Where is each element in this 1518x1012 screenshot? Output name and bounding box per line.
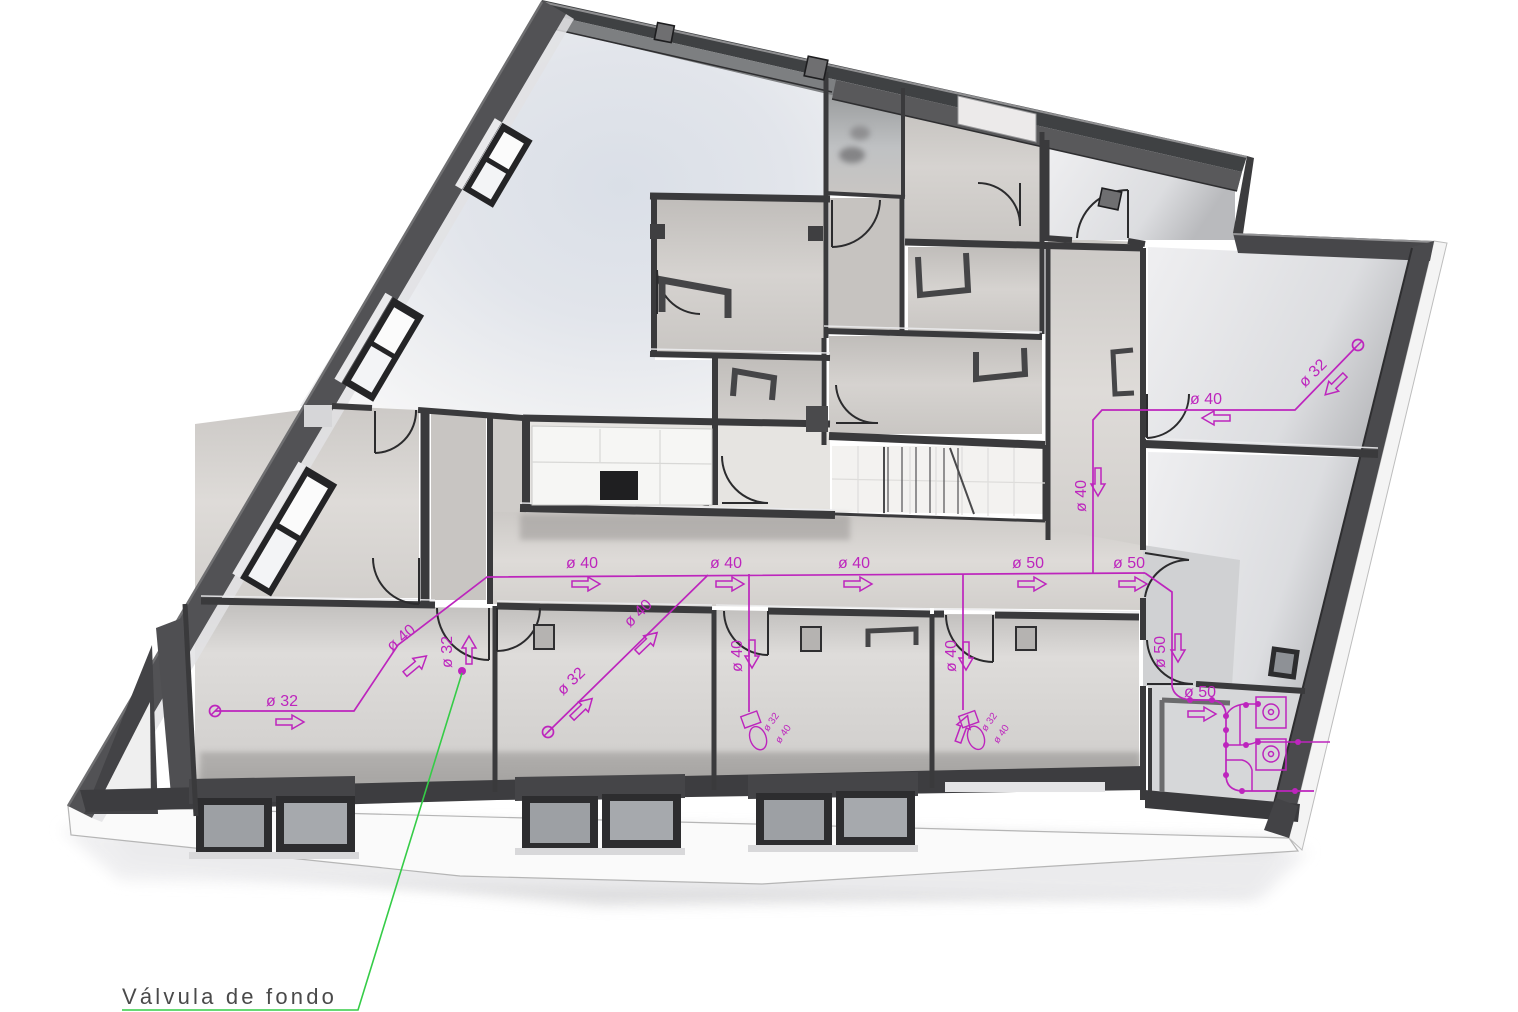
svg-text:ø 50: ø 50	[1113, 555, 1145, 572]
svg-text:ø 40: ø 40	[1073, 480, 1090, 512]
svg-text:ø 40: ø 40	[943, 640, 960, 672]
svg-text:ø 40: ø 40	[566, 555, 598, 572]
svg-text:Válvula de fondo: Válvula de fondo	[122, 984, 337, 1009]
svg-text:ø 32: ø 32	[439, 636, 456, 668]
svg-text:ø 40: ø 40	[1190, 391, 1222, 408]
svg-text:ø 40: ø 40	[729, 640, 746, 672]
svg-text:ø 50: ø 50	[1012, 555, 1044, 572]
svg-text:ø 40: ø 40	[838, 555, 870, 572]
svg-text:ø 50: ø 50	[1152, 636, 1169, 668]
svg-text:ø 32: ø 32	[266, 693, 298, 710]
svg-text:ø 40: ø 40	[710, 555, 742, 572]
